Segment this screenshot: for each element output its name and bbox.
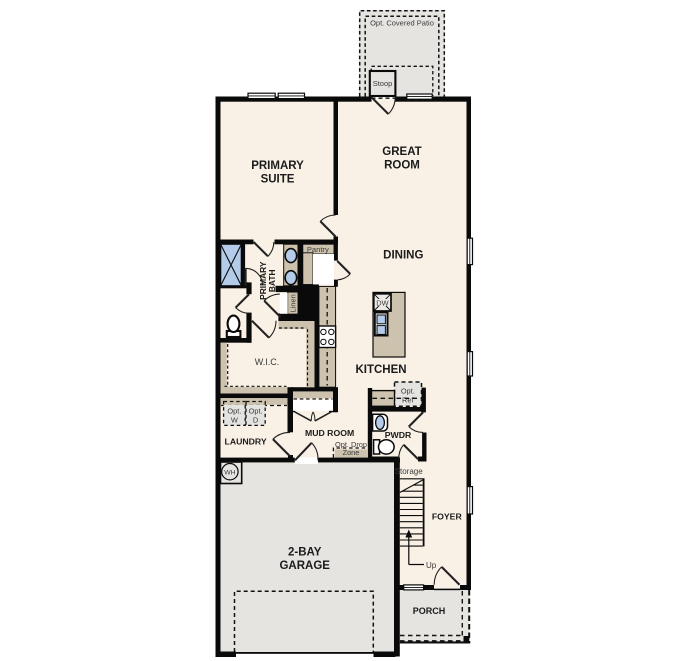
svg-text:2-BAY: 2-BAY (288, 547, 322, 559)
svg-text:Pantry: Pantry (307, 245, 329, 254)
svg-text:FOYER: FOYER (432, 512, 463, 522)
svg-text:WH: WH (224, 469, 235, 476)
svg-text:KITCHEN: KITCHEN (355, 364, 406, 376)
svg-text:D: D (253, 415, 258, 424)
svg-text:Opt.: Opt. (249, 406, 263, 415)
svg-text:Ref: Ref (402, 396, 414, 405)
svg-text:Zone: Zone (343, 448, 360, 457)
svg-text:PRIMARY: PRIMARY (251, 160, 304, 172)
svg-text:W.I.C.: W.I.C. (255, 357, 280, 367)
svg-text:PORCH: PORCH (413, 606, 446, 616)
svg-text:Opt.: Opt. (227, 406, 241, 415)
svg-text:DW: DW (376, 298, 388, 307)
svg-text:Opt.: Opt. (401, 387, 415, 396)
svg-text:DINING: DINING (383, 250, 423, 262)
svg-text:Linen: Linen (289, 294, 298, 312)
svg-text:PWDR: PWDR (385, 430, 412, 440)
svg-text:LAUNDRY: LAUNDRY (225, 436, 267, 446)
svg-text:Opt. Covered Patio: Opt. Covered Patio (370, 18, 434, 27)
svg-text:BATH: BATH (267, 269, 277, 292)
svg-text:Stoop: Stoop (373, 79, 393, 88)
svg-text:SUITE: SUITE (261, 174, 295, 186)
svg-text:MUD ROOM: MUD ROOM (305, 428, 354, 438)
svg-text:ROOM: ROOM (384, 160, 420, 172)
svg-text:Storage: Storage (395, 467, 424, 476)
svg-text:Up: Up (426, 561, 437, 570)
svg-text:GARAGE: GARAGE (279, 560, 330, 572)
svg-text:W: W (231, 415, 238, 424)
svg-text:GREAT: GREAT (382, 146, 421, 158)
